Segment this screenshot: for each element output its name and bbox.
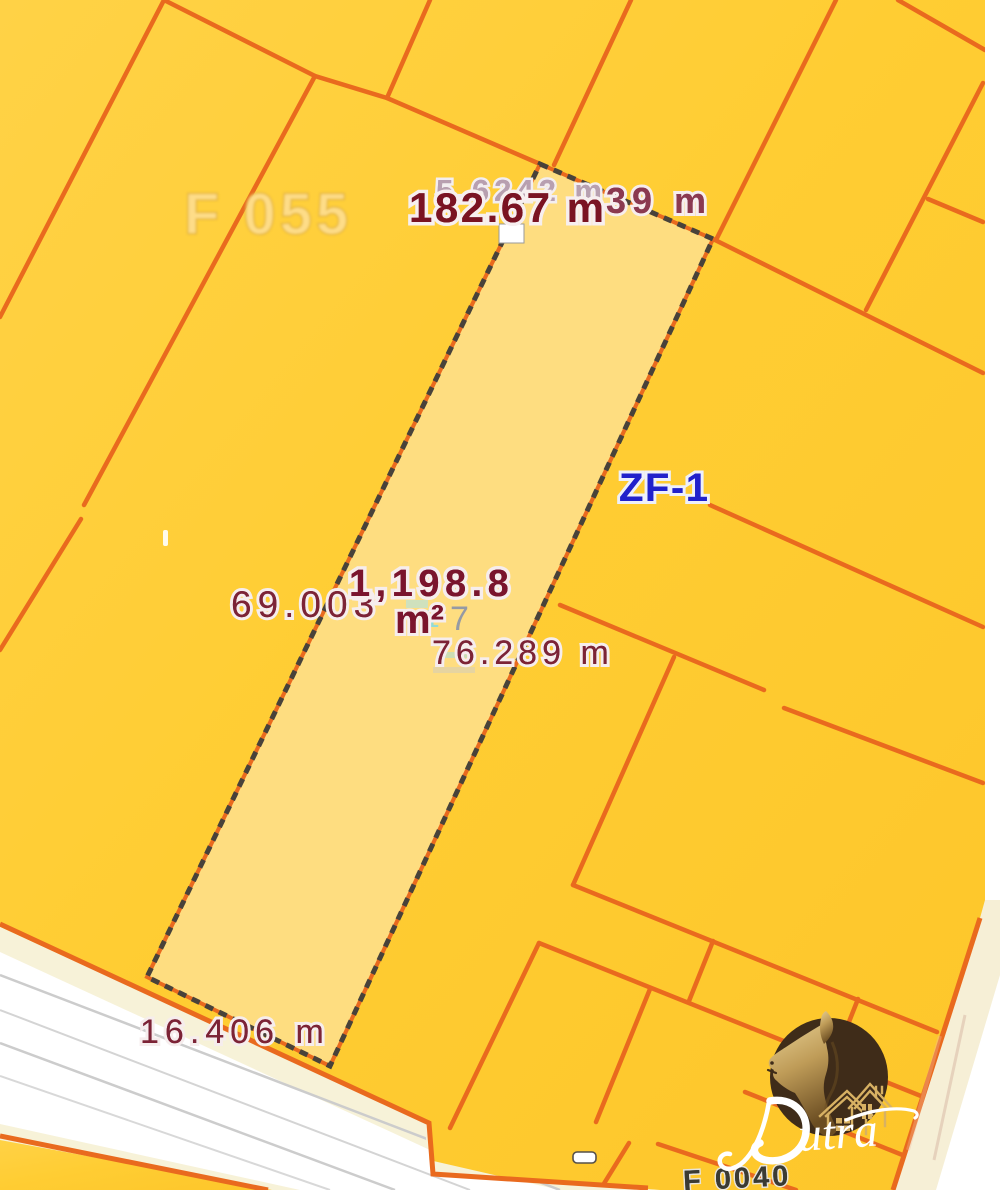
svg-text:39 m: 39 m <box>606 180 712 221</box>
svg-text:F 055: F 055 <box>184 182 352 247</box>
svg-text:182.67 m: 182.67 m <box>409 184 606 231</box>
svg-text:ZF-1: ZF-1 <box>619 466 709 510</box>
svg-text:16.406 m: 16.406 m <box>140 1013 330 1051</box>
svg-text:76.289 m: 76.289 m <box>432 634 614 672</box>
svg-text:7: 7 <box>450 600 469 638</box>
